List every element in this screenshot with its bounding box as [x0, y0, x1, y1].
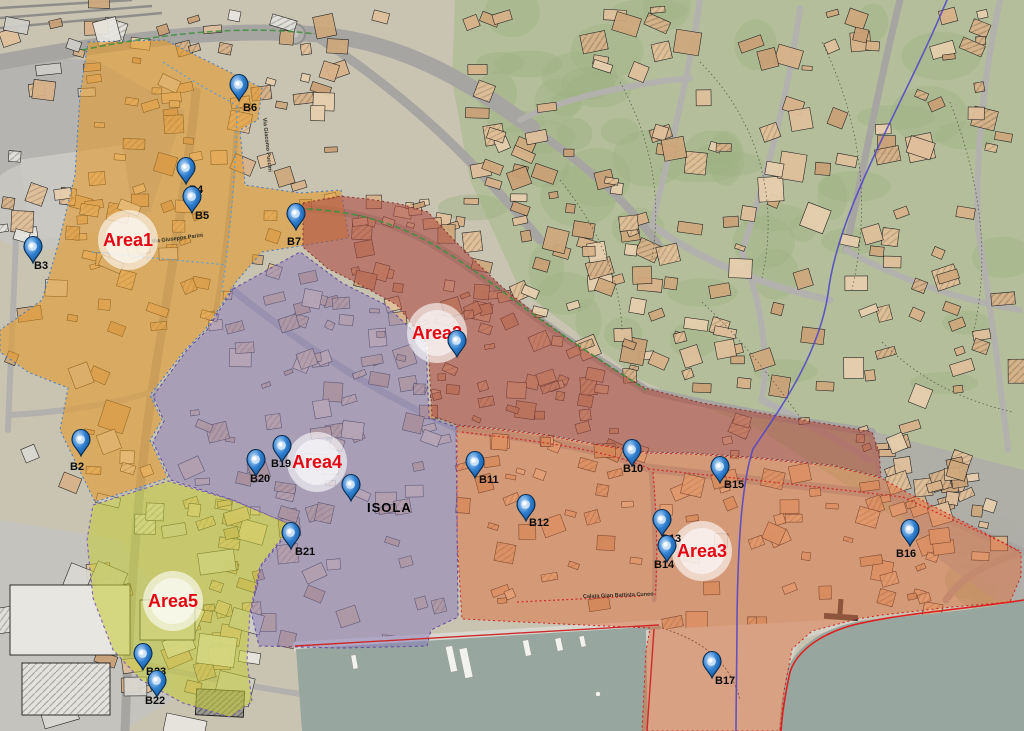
area-label-area5: Area5	[143, 571, 203, 631]
map-pin-label-B17: B17	[715, 675, 735, 687]
place-label: ISOLA	[367, 500, 412, 515]
city-map: Via Giuseppe PariniVia Giacomo PucciniCa…	[0, 0, 1024, 731]
map-pin-label-B22: B22	[145, 695, 165, 707]
svg-text:Area4: Area4	[292, 452, 342, 472]
map-pin-label-B12: B12	[529, 517, 549, 529]
map-pin-label-B15: B15	[724, 479, 744, 491]
base-map: Via Giuseppe PariniVia Giacomo PucciniCa…	[0, 0, 1024, 731]
map-pin-label-B2: B2	[70, 461, 84, 473]
area-label-area1: Area1	[98, 210, 158, 270]
map-pin-label-B7: B7	[287, 236, 301, 248]
svg-text:Area1: Area1	[103, 230, 153, 250]
map-pin-label-B11: B11	[479, 474, 499, 486]
map-pin-label-B6: B6	[243, 102, 257, 114]
map-pin-label-B16: B16	[896, 548, 916, 560]
map-pin-label-B5: B5	[195, 210, 209, 222]
map-pin-label-B14: B14	[654, 559, 675, 571]
svg-text:Area3: Area3	[677, 541, 727, 561]
map-pin-label-B20: B20	[250, 473, 270, 485]
map-pin-label-B3: B3	[34, 260, 48, 272]
svg-text:Area5: Area5	[148, 591, 198, 611]
map-pin-label-B21: B21	[295, 546, 315, 558]
area-label-area4: Area4	[287, 432, 347, 492]
area-label-area3: Area3	[672, 521, 732, 581]
